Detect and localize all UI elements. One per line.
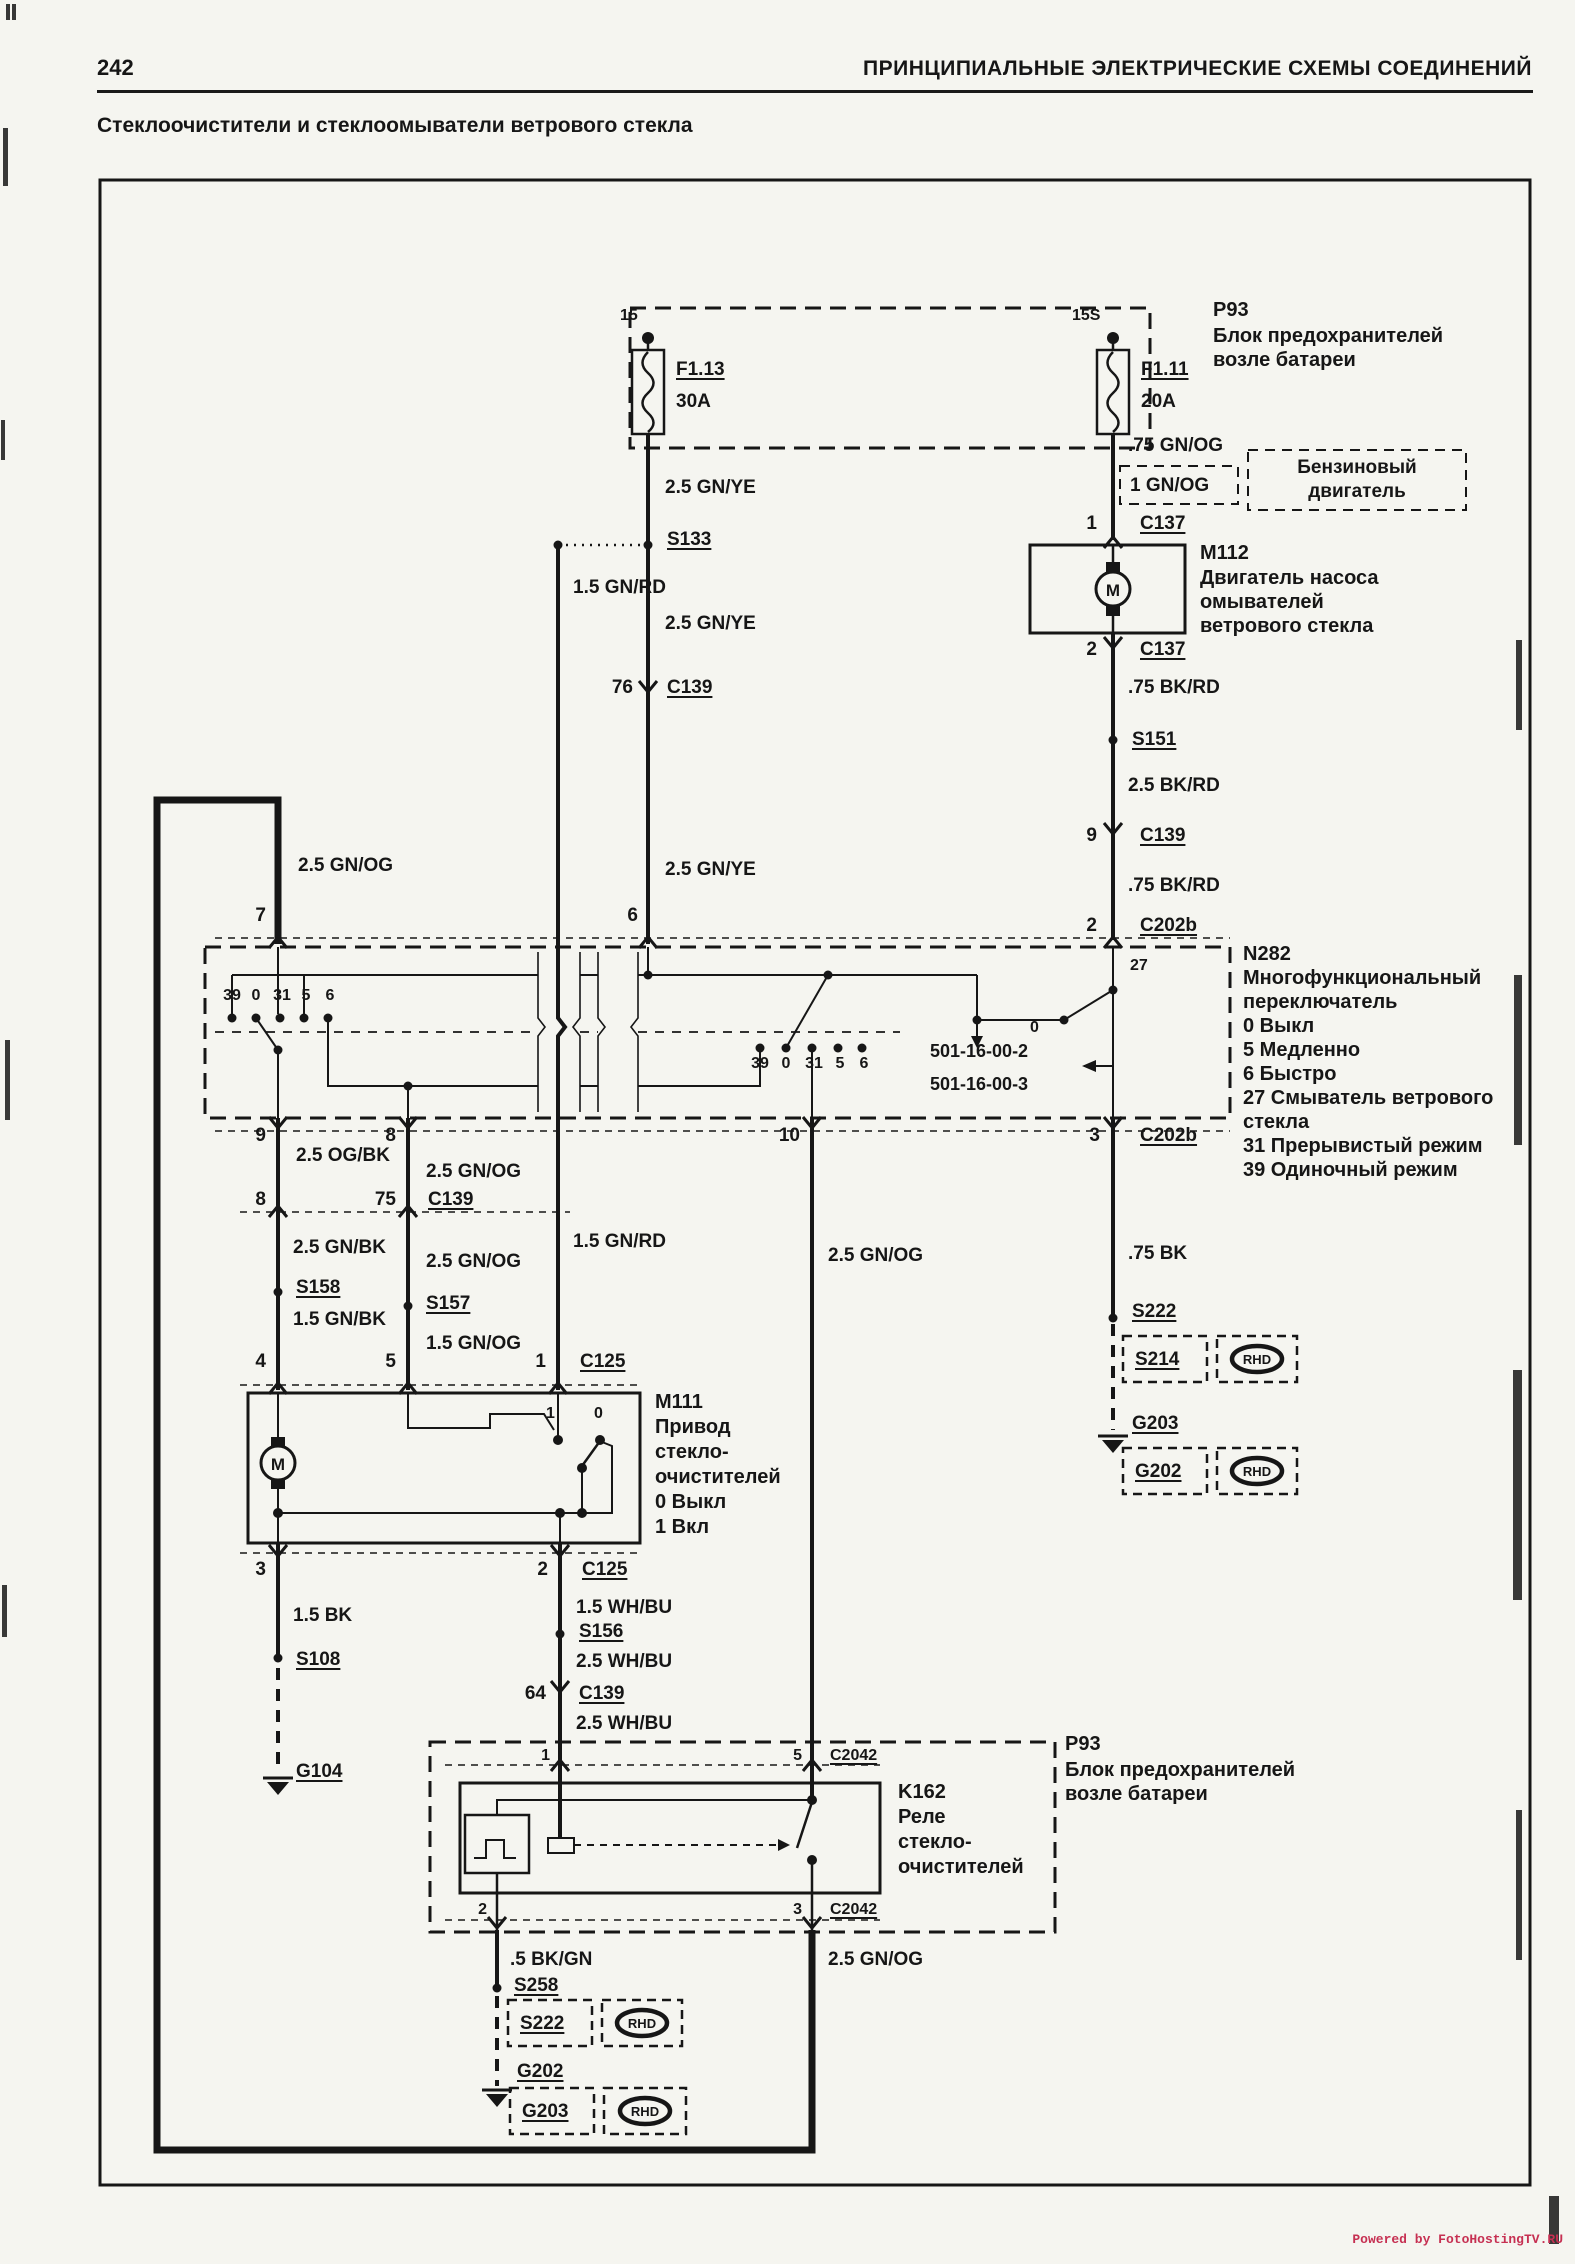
splice-name: S157 <box>426 1294 470 1313</box>
legend-item: 27 Смыватель ветрового <box>1243 1088 1493 1108</box>
wire-label: 2.5 GN/OG <box>298 856 393 875</box>
pin-number: 8 <box>255 1190 266 1209</box>
component-id: M111 <box>655 1392 703 1412</box>
connector-name: C137 <box>1140 640 1185 659</box>
wire-label: .75 BK <box>1128 1244 1187 1263</box>
page-number: 242 <box>97 55 134 81</box>
rhd-tag: RHD <box>631 2105 659 2118</box>
scanned-manual-page: M <box>0 0 1575 2264</box>
component-id: P93 <box>1213 300 1249 320</box>
legend-item: 0 Выкл <box>1243 1016 1314 1036</box>
fuse-name: F1.13 <box>676 360 725 379</box>
component-desc: ветрового стекла <box>1200 616 1373 636</box>
pin-number: 2 <box>1086 640 1097 659</box>
contact-label: 27 <box>1130 958 1148 974</box>
connector-name: C137 <box>1140 514 1185 533</box>
wire-label: 1.5 WH/BU <box>576 1598 672 1617</box>
contact-label: 31 <box>273 988 291 1004</box>
svg-text:M: M <box>1106 581 1120 600</box>
pin-number: 1 <box>535 1352 546 1371</box>
plug-icon <box>548 1838 574 1853</box>
contact-label: 5 <box>302 988 311 1004</box>
component-id: N282 <box>1243 944 1291 964</box>
component-id: P93 <box>1065 1734 1101 1754</box>
contact-label: 6 <box>326 988 335 1004</box>
wire-label: 1.5 GN/RD <box>573 578 666 597</box>
wire-label: .5 BK/GN <box>510 1950 592 1969</box>
m112-box: M <box>1030 545 1185 633</box>
wire-label: 2.5 GN/OG <box>426 1162 521 1181</box>
component-desc: Блок предохранителей <box>1213 326 1443 346</box>
connector-name: C2042 <box>830 1748 877 1764</box>
component-desc: Привод <box>655 1417 731 1437</box>
component-desc: очистителей <box>655 1467 781 1487</box>
contact-label: 0 <box>594 1406 603 1422</box>
contact-label: 39 <box>223 988 241 1004</box>
component-desc: стекло- <box>898 1832 972 1852</box>
wire-label: 2.5 GN/YE <box>665 478 756 497</box>
engine-note: Бензиновый <box>1297 458 1417 477</box>
rhd-tag: RHD <box>628 2017 656 2030</box>
wire-label: 2.5 WH/BU <box>576 1714 672 1733</box>
component-desc: Двигатель насоса <box>1200 568 1379 588</box>
legend-item: 6 Быстро <box>1243 1064 1337 1084</box>
contact-label: 39 <box>751 1056 769 1072</box>
pin-number: 2 <box>478 1902 487 1918</box>
wire-label: 2.5 GN/BK <box>293 1238 386 1257</box>
rhd-tag: RHD <box>1243 1353 1271 1366</box>
connector-name: C125 <box>582 1560 627 1579</box>
connector-name: C2042 <box>830 1902 877 1918</box>
pin-number: 76 <box>612 678 633 697</box>
fuse-terminal: 15S <box>1072 308 1100 324</box>
circuit-ref: 501-16-00-2 <box>930 1042 1028 1060</box>
pin-number: 3 <box>1089 1126 1100 1145</box>
component-desc: очистителей <box>898 1857 1024 1877</box>
component-id: K162 <box>898 1782 946 1802</box>
contact-label: 5 <box>836 1056 845 1072</box>
wire-label: 1.5 BK <box>293 1606 352 1625</box>
contact-label: 6 <box>860 1056 869 1072</box>
circuit-ref: 501-16-00-3 <box>930 1075 1028 1093</box>
engine-note: двигатель <box>1308 482 1406 501</box>
pin-number: 9 <box>255 1126 266 1145</box>
connector-name: C139 <box>579 1684 624 1703</box>
component-desc: омывателей <box>1200 592 1324 612</box>
wire-label: 2.5 WH/BU <box>576 1652 672 1671</box>
connector-name: C139 <box>667 678 712 697</box>
pin-number: 4 <box>255 1352 266 1371</box>
component-desc: Блок предохранителей <box>1065 1760 1295 1780</box>
legend-item: 0 Выкл <box>655 1492 726 1512</box>
pin-number: 9 <box>1086 826 1097 845</box>
splice-dots <box>274 541 1118 1993</box>
ground-name: G104 <box>296 1762 342 1781</box>
pin-number: 8 <box>385 1126 396 1145</box>
component-id: M112 <box>1200 543 1249 563</box>
ground-name: G203 <box>1132 1414 1178 1433</box>
fuse-rating: 20A <box>1141 392 1176 411</box>
pin-number: 1 <box>541 1748 550 1764</box>
wire-label: .75 BK/RD <box>1128 678 1220 697</box>
splice-name: S156 <box>579 1622 623 1641</box>
ground-name-alt: G203 <box>522 2102 568 2121</box>
wire-label: 2.5 OG/BK <box>296 1146 390 1165</box>
fuse-terminal: 15 <box>620 308 638 324</box>
wire-label: 1.5 GN/BK <box>293 1310 386 1329</box>
connector-name: C202b <box>1140 916 1197 935</box>
component-desc: возле батареи <box>1065 1784 1208 1804</box>
pin-number: 2 <box>537 1560 548 1579</box>
wire-label: 2.5 GN/OG <box>828 1950 923 1969</box>
pin-number: 10 <box>779 1126 800 1145</box>
pin-number: 2 <box>1086 916 1097 935</box>
wire-label: .75 BK/RD <box>1128 876 1220 895</box>
m111-output-wires <box>278 1543 560 1838</box>
pin-number: 1 <box>1086 514 1097 533</box>
svg-text:M: M <box>271 1455 285 1474</box>
wire-label: 2.5 GN/YE <box>665 614 756 633</box>
contact-label: 0 <box>782 1056 791 1072</box>
n282-contacts <box>228 971 1118 1091</box>
connector-name: C139 <box>428 1190 473 1209</box>
ground-g202-icon <box>482 2090 512 2107</box>
timer-coil-icon <box>474 1840 516 1858</box>
contact-label: 31 <box>805 1056 823 1072</box>
splice-name: S133 <box>667 530 711 549</box>
page-header: ПРИНЦИПИАЛЬНЫЕ ЭЛЕКТРИЧЕСКИЕ СХЕМЫ СОЕДИ… <box>863 57 1532 81</box>
header-rule <box>97 90 1533 93</box>
pin-number: 3 <box>255 1560 266 1579</box>
component-desc: стекло- <box>655 1442 729 1462</box>
pin-number: 5 <box>793 1748 802 1764</box>
connector-name: C125 <box>580 1352 625 1371</box>
fuse-rating: 30A <box>676 392 711 411</box>
pin-number: 7 <box>255 906 266 925</box>
m111-box: M <box>248 1393 640 1543</box>
wire-label: 2.5 BK/RD <box>1128 776 1220 795</box>
splice-name: S222 <box>1132 1302 1176 1321</box>
splice-name: S158 <box>296 1278 340 1297</box>
k162-relay <box>460 1762 880 1930</box>
ground-name-alt: G202 <box>1135 1462 1181 1481</box>
splice-name: S108 <box>296 1650 340 1669</box>
legend-item: 5 Медленно <box>1243 1040 1360 1060</box>
legend-item: стекла <box>1243 1112 1309 1132</box>
connector-name: C139 <box>1140 826 1185 845</box>
legend-item: 1 Вкл <box>655 1517 709 1537</box>
fuse-f113 <box>632 332 664 434</box>
wire-label-alt: 1 GN/OG <box>1130 476 1209 495</box>
fuse-f111 <box>1097 332 1129 434</box>
wire-label: 1.5 GN/RD <box>573 1232 666 1251</box>
rhd-tag: RHD <box>1243 1465 1271 1478</box>
wire-label: 2.5 GN/YE <box>665 860 756 879</box>
page-title: Стеклоочистители и стеклоомыватели ветро… <box>97 114 693 138</box>
contact-label: 0 <box>1030 1020 1039 1036</box>
connector-arrows <box>269 537 1122 1928</box>
component-desc: Реле <box>898 1807 946 1827</box>
pin-number: 64 <box>525 1684 546 1703</box>
splice-name-alt: S214 <box>1135 1350 1179 1369</box>
wire-label: .75 GN/OG <box>1128 436 1223 455</box>
ground-name: G202 <box>517 2062 563 2081</box>
pin-number: 6 <box>627 906 638 925</box>
component-desc: Многофункциональный <box>1243 968 1481 988</box>
component-desc: возле батареи <box>1213 350 1356 370</box>
pin-number: 75 <box>375 1190 396 1209</box>
watermark: Powered by FotoHostingTV.RU <box>1352 2232 1563 2247</box>
wire-label: 1.5 GN/OG <box>426 1334 521 1353</box>
contact-label: 1 <box>546 1406 555 1422</box>
ground-g104-icon <box>263 1778 293 1795</box>
fuse-name: F1.11 <box>1141 360 1189 379</box>
pin-number: 5 <box>385 1352 396 1371</box>
n282-box <box>205 938 1230 1131</box>
wire-label: 2.5 GN/OG <box>828 1246 923 1265</box>
contact-label: 0 <box>252 988 261 1004</box>
legend-item: 39 Одиночный режим <box>1243 1160 1458 1180</box>
splice-name: S258 <box>514 1976 558 1995</box>
splice-name-alt: S222 <box>520 2014 564 2033</box>
pin-number: 3 <box>793 1902 802 1918</box>
legend-item: 31 Прерывистый режим <box>1243 1136 1483 1156</box>
splice-name: S151 <box>1132 730 1176 749</box>
wire-label: 2.5 GN/OG <box>426 1252 521 1271</box>
connector-name: C202b <box>1140 1126 1197 1145</box>
component-desc: переключатель <box>1243 992 1397 1012</box>
